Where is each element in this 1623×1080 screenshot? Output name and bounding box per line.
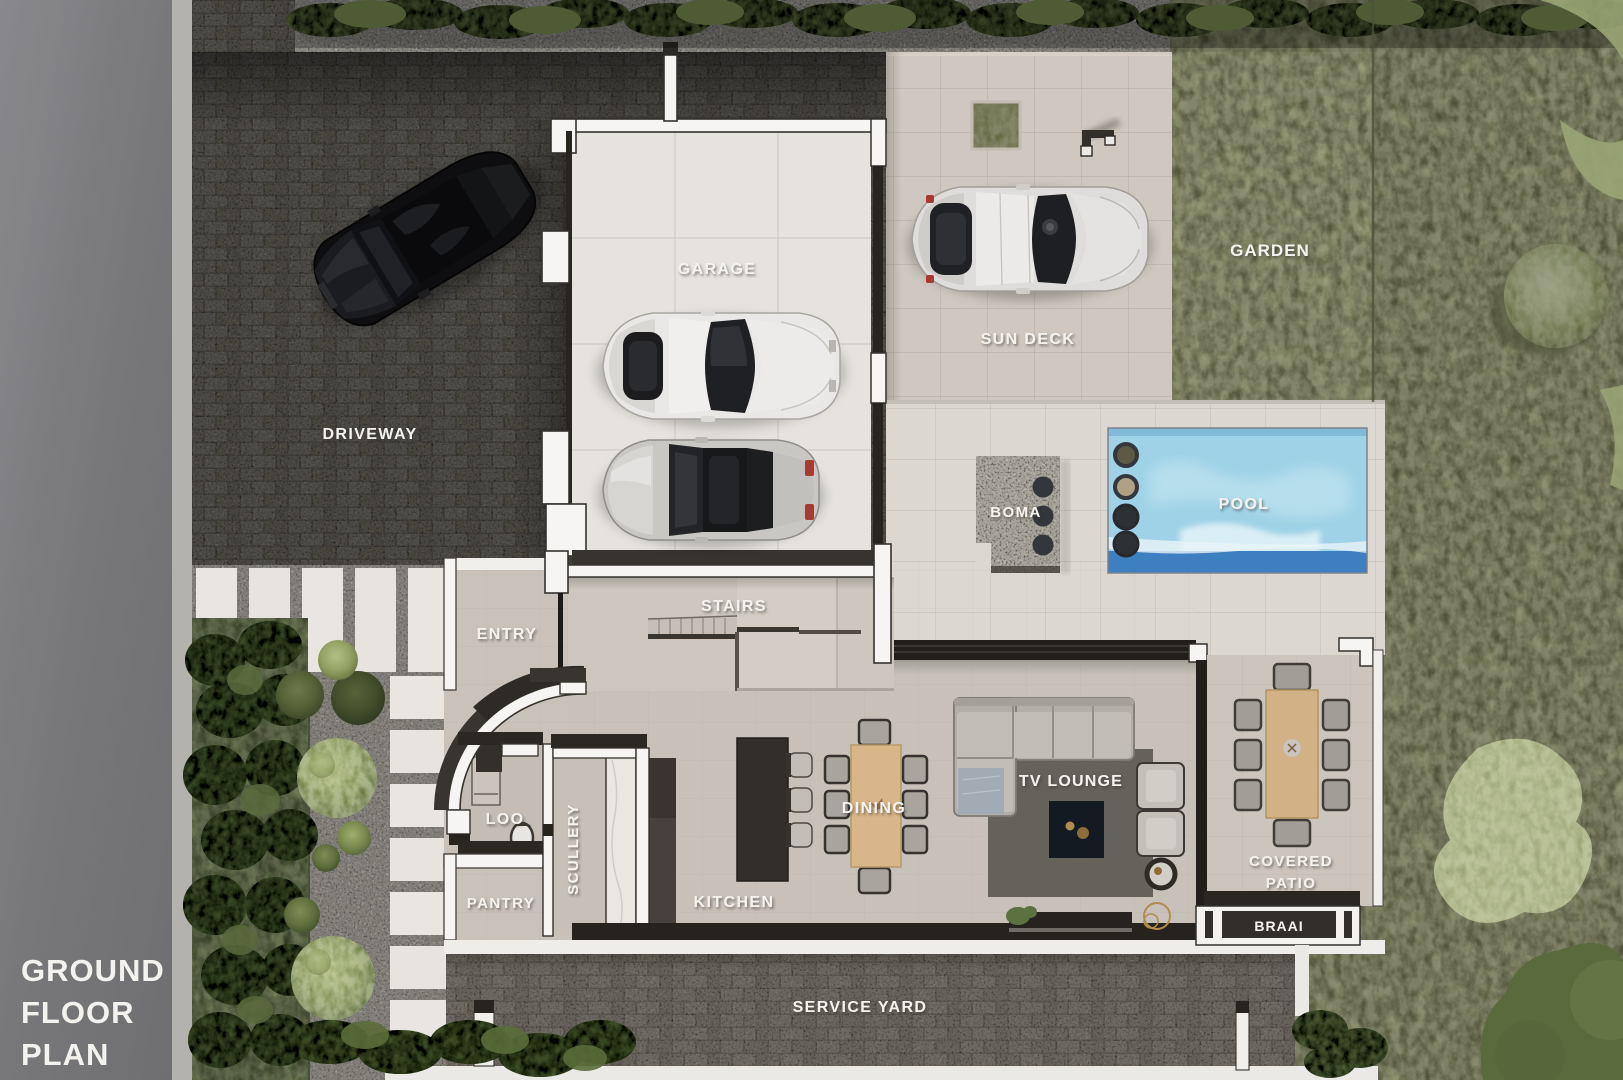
svg-text:SERVICE YARD: SERVICE YARD — [793, 999, 928, 1016]
svg-text:BOMA: BOMA — [990, 504, 1041, 521]
svg-text:PLAN: PLAN — [21, 1037, 109, 1072]
svg-text:STAIRS: STAIRS — [701, 598, 767, 615]
svg-text:PATIO: PATIO — [1266, 875, 1317, 892]
svg-text:DINING: DINING — [842, 800, 906, 817]
svg-text:COVERED: COVERED — [1249, 853, 1333, 870]
svg-text:FLOOR: FLOOR — [21, 995, 135, 1030]
svg-text:GARDEN: GARDEN — [1230, 241, 1310, 260]
svg-text:ENTRY: ENTRY — [477, 626, 538, 643]
svg-text:GROUND: GROUND — [21, 953, 165, 988]
svg-text:LOO: LOO — [486, 811, 525, 828]
svg-text:KITCHEN: KITCHEN — [694, 894, 775, 911]
svg-text:BRAAI: BRAAI — [1254, 918, 1303, 934]
svg-text:TV LOUNGE: TV LOUNGE — [1019, 773, 1123, 790]
svg-text:DRIVEWAY: DRIVEWAY — [322, 426, 417, 443]
svg-text:PANTRY: PANTRY — [467, 895, 535, 912]
svg-text:SUN DECK: SUN DECK — [981, 331, 1076, 348]
svg-text:GARAGE: GARAGE — [678, 261, 757, 278]
svg-text:SCULLERY: SCULLERY — [565, 803, 582, 894]
svg-text:POOL: POOL — [1219, 496, 1270, 513]
